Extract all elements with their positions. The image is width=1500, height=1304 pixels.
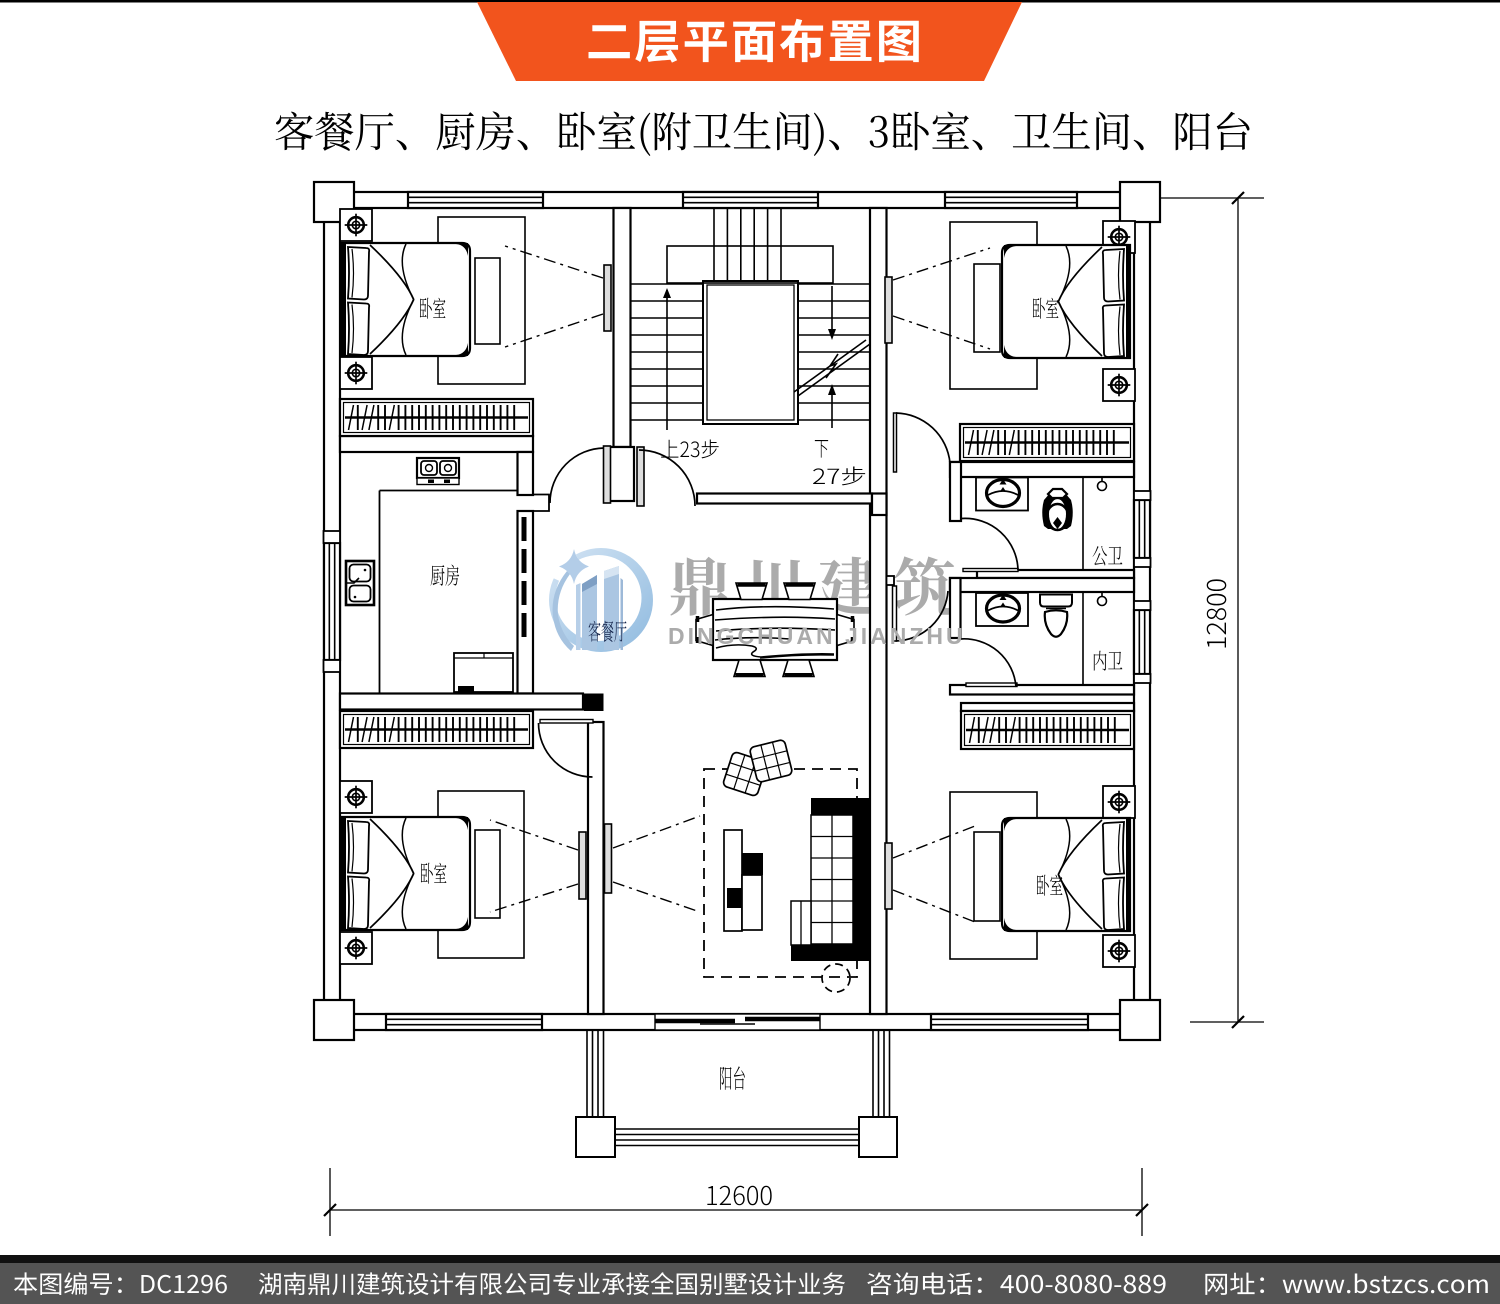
svg-text:DINGCHUAN JIANZHU: DINGCHUAN JIANZHU (668, 623, 966, 649)
